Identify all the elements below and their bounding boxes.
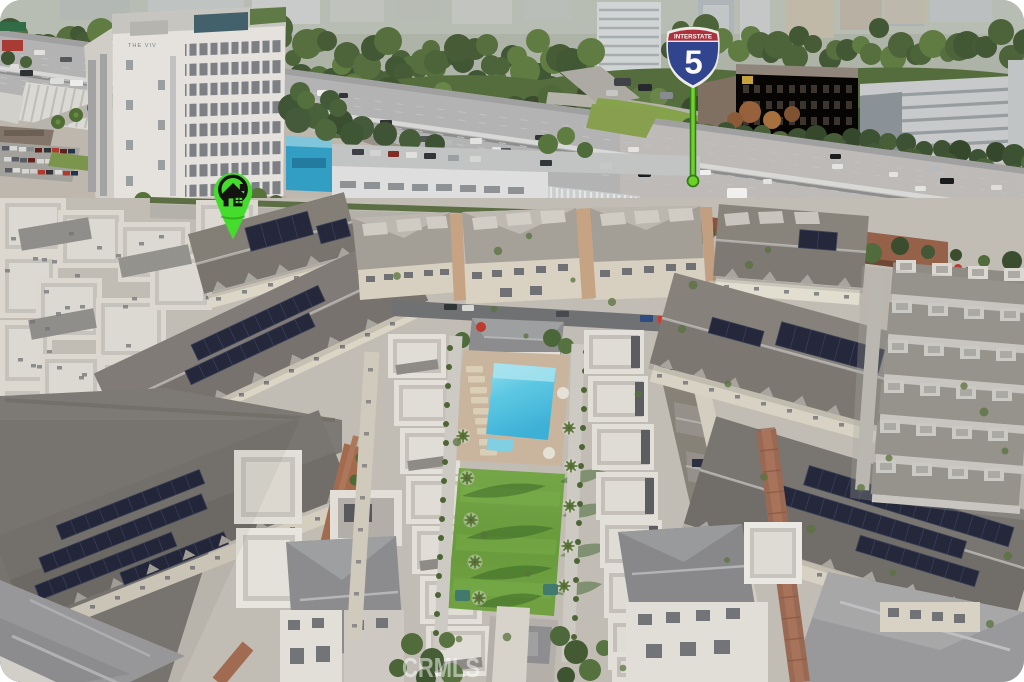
svg-text:CRMLS: CRMLS: [402, 652, 480, 682]
